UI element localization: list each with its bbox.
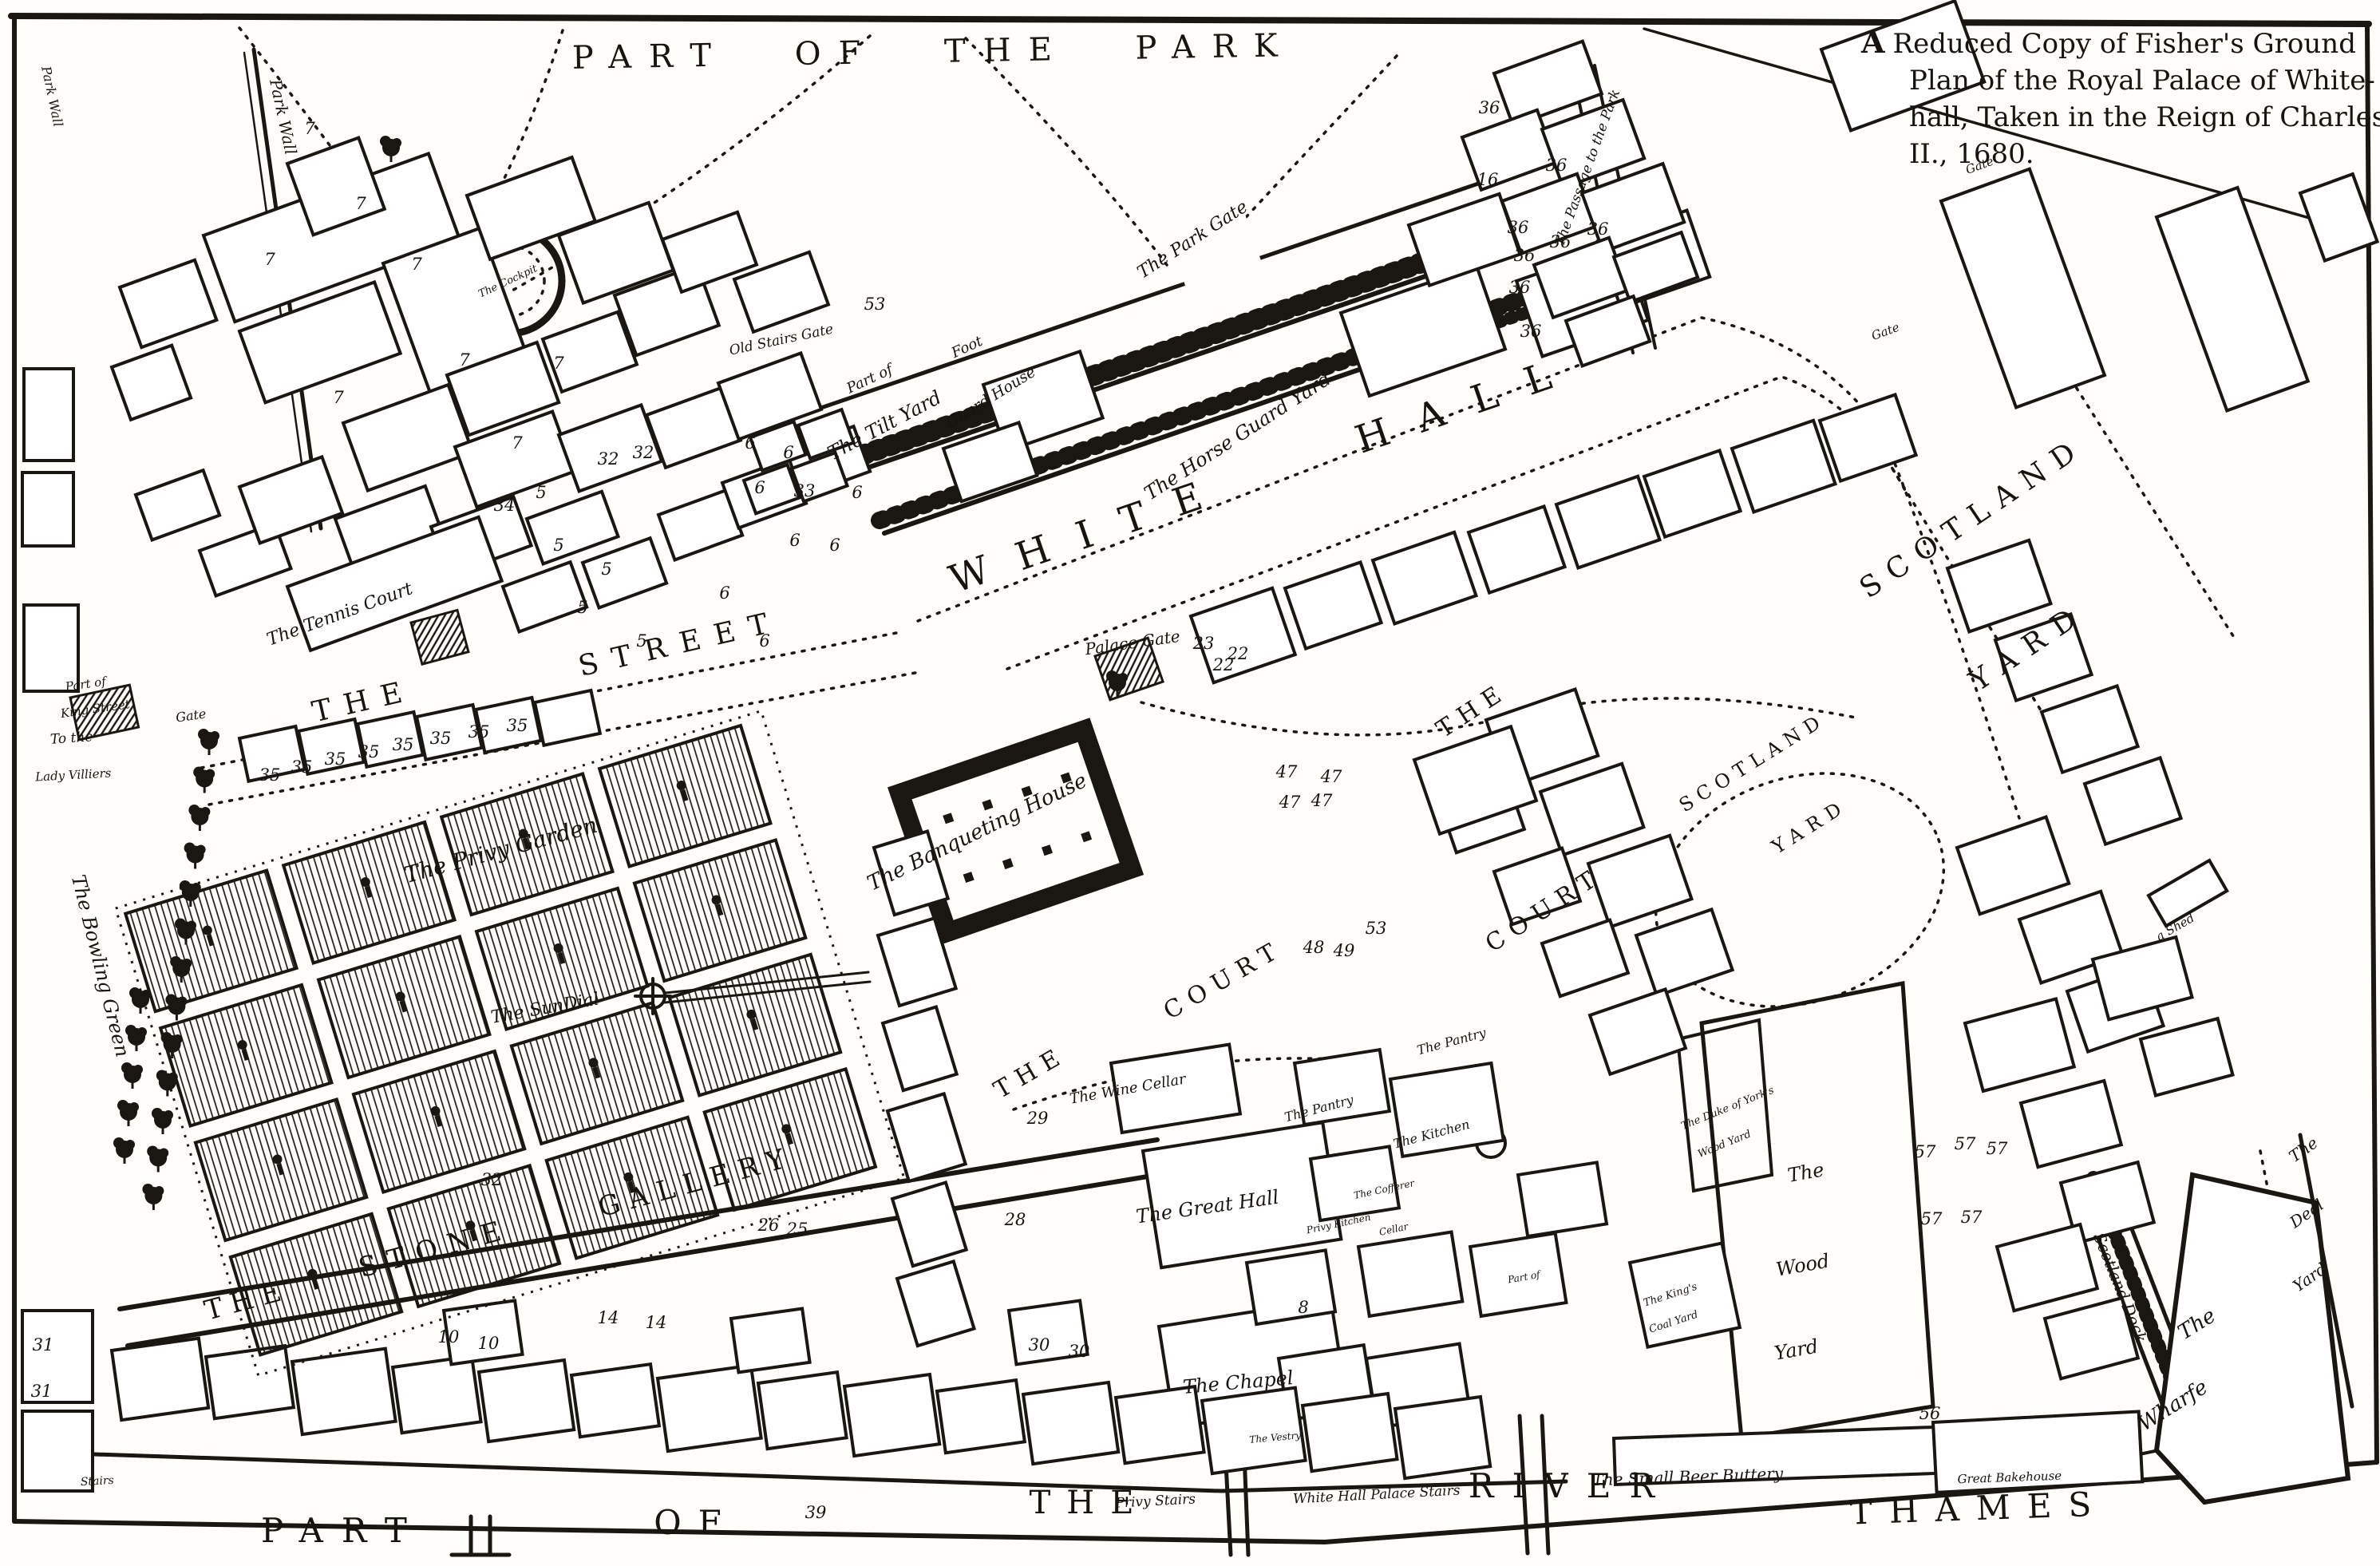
plot-number: 31 [33, 1335, 54, 1354]
plot-number: 6 [829, 536, 840, 555]
building-outline [1518, 1162, 1607, 1236]
plot-number: 35 [393, 735, 414, 754]
building-outline [1373, 532, 1476, 624]
plot-number: 53 [864, 295, 886, 314]
building-outline [844, 1374, 939, 1456]
plot-number: 6 [789, 531, 800, 550]
plot-number: 5 [577, 598, 587, 617]
label-part-of-the-park: PART OF THE PARK [572, 27, 1295, 77]
building-outline [1556, 477, 1659, 568]
plot-number: 6 [754, 478, 765, 497]
plot-number: 29 [1026, 1109, 1049, 1128]
plot-number: 25 [786, 1220, 808, 1239]
label-park-wall: Park Wall [38, 64, 66, 128]
building-outline [883, 1007, 957, 1091]
building-outline [1285, 562, 1382, 648]
building-outline [479, 1360, 574, 1441]
building-outline [1116, 1386, 1204, 1463]
plot-number: 35 [430, 729, 452, 748]
plot-number: 56 [1919, 1404, 1941, 1423]
building-outline [888, 1093, 966, 1181]
building-outline [543, 312, 637, 392]
building-outline [1644, 450, 1741, 536]
building-outline [343, 385, 472, 490]
tree-icon [152, 1108, 173, 1134]
label-gate: Gate [1869, 320, 1901, 343]
plot-number: 26 [757, 1216, 780, 1235]
plot-number: 36 [1479, 98, 1500, 117]
plot-number: 32 [598, 449, 619, 469]
label-duke-wood-yard: Wood Yard [1696, 1129, 1753, 1161]
label-old-stairs-gate: Old Stairs Gate [728, 322, 835, 359]
label-deal-yard: The [2286, 1133, 2322, 1166]
building-outline [503, 562, 587, 631]
plot-number: 49 [1333, 941, 1355, 960]
engraved-map-page: 7777777735353535353535353432323255555666… [0, 0, 2380, 1566]
plot-number: 6 [719, 583, 729, 603]
building-outline [658, 1366, 761, 1452]
tree-icon [193, 767, 215, 793]
building-outline [937, 1380, 1025, 1453]
building-outline [897, 1261, 974, 1346]
plot-number: 14 [646, 1313, 667, 1332]
plot-number: 47 [1275, 762, 1298, 781]
label-the-street: STREET [575, 605, 785, 684]
plot-number: 36 [1587, 219, 1609, 239]
building-outline [583, 538, 666, 607]
building-outline [892, 1183, 967, 1267]
label-stairs: Stairs [80, 1474, 114, 1489]
label-river-caption: PART [261, 1511, 425, 1550]
park-path [966, 38, 1167, 265]
small-pier [452, 1517, 509, 1555]
plot-number: 10 [478, 1334, 500, 1353]
plot-number: 33 [794, 481, 816, 500]
building-outline [2021, 1081, 2121, 1167]
plot-number: 7 [333, 388, 344, 407]
plot-number: 35 [259, 765, 281, 785]
plot-number: 47 [1311, 791, 1333, 810]
label-river-caption: THAMES [1849, 1484, 2109, 1532]
plot-number: 7 [355, 194, 366, 213]
label-bowling-green: The Bowling Green [67, 872, 134, 1059]
tree-icon [165, 995, 187, 1021]
plot-number: 8 [1298, 1298, 1308, 1317]
building-outline [1247, 1250, 1335, 1324]
plot-number: 35 [358, 742, 380, 761]
tree-icon [198, 729, 219, 755]
building-outline [239, 457, 342, 543]
wood-yard-outline [1702, 983, 1933, 1438]
plot-number: 48 [1303, 938, 1325, 957]
plot-number: 57 [1915, 1142, 1936, 1161]
building-outline [112, 346, 191, 420]
title-lead: A [1860, 24, 1885, 60]
plot-number: 5 [601, 560, 611, 579]
plot-number: 6 [852, 483, 862, 502]
tree-icon [117, 1100, 139, 1126]
plot-number: 47 [1320, 767, 1342, 786]
plot-number: 36 [1514, 246, 1536, 265]
building-outline [1957, 817, 2069, 915]
plot-number: 7 [459, 350, 470, 370]
building-outline [527, 492, 618, 564]
building-outline [1732, 421, 1835, 512]
plot-number: 34 [494, 496, 516, 515]
tree-icon [188, 805, 210, 831]
privy-garden-plots [116, 711, 904, 1376]
building-outline [1469, 506, 1565, 592]
plot-number: 57 [1961, 1208, 1983, 1227]
plot-number: 7 [512, 433, 523, 453]
building-outline [22, 473, 73, 546]
court-gate-block [411, 610, 468, 664]
building-outline [2085, 757, 2181, 844]
plot-number: 5 [553, 536, 563, 555]
plot-number: 57 [1921, 1209, 1943, 1228]
tree-icon [184, 843, 206, 869]
label-to-the-villiers: To the [49, 729, 93, 748]
plot-number: 36 [1508, 218, 1529, 237]
plot-number: 30 [1029, 1335, 1050, 1354]
plot-number: 22 [1227, 644, 1249, 663]
building-outline [1965, 999, 2074, 1091]
building-outline [2042, 686, 2138, 772]
building-outline [1023, 1382, 1118, 1464]
tree-icon [129, 987, 151, 1014]
building-outline [1542, 920, 1628, 996]
building-outline [1947, 540, 2050, 632]
map-title-line: hall, Taken in the Reign of Charles [1909, 101, 2380, 133]
map-title-line: AReduced Copy of Fisher's Ground [1860, 24, 2356, 60]
label-cellar: Cellar [1378, 1220, 1410, 1238]
building-outline [1941, 169, 2105, 408]
plot-number: 7 [304, 119, 315, 138]
label-wood-yard: Wood [1774, 1249, 1831, 1280]
label-park-wall: Park Wall [266, 77, 301, 156]
building-outline [1358, 1232, 1462, 1316]
plot-number: 35 [507, 716, 528, 735]
plot-number: 36 [1520, 322, 1542, 341]
plot-number: 47 [1279, 793, 1301, 812]
frame-top-line [11, 16, 2369, 24]
plot-number: 7 [264, 250, 275, 269]
label-duke-wood-yard: The Duke of York's [1680, 1085, 1777, 1133]
plot-number: 32 [481, 1170, 503, 1189]
label-to-the-villiers: Lady Villiers [34, 766, 112, 785]
tree-icon [147, 1146, 168, 1173]
plot-number: 57 [1987, 1139, 2008, 1158]
building-outline [1820, 394, 1916, 480]
building-outline [1540, 764, 1643, 856]
map-title-line: Plan of the Royal Palace of White- [1909, 65, 2375, 97]
label-river-caption: OF [654, 1503, 738, 1542]
building-outline [758, 1372, 847, 1449]
label-pantry: The Pantry [1415, 1025, 1488, 1058]
label-the-court: COURT [1159, 935, 1288, 1026]
building-outline [1590, 989, 1686, 1074]
building-outline [24, 369, 73, 461]
plot-number: 7 [411, 255, 422, 274]
building-outline [1636, 909, 1733, 995]
plot-number: 35 [291, 757, 313, 777]
building-outline [1997, 1224, 2097, 1311]
plot-number: 16 [1477, 170, 1499, 189]
building-outline [1303, 1394, 1398, 1471]
plot-number: 30 [1069, 1342, 1090, 1361]
building-outline [571, 1364, 659, 1437]
building-outline [535, 690, 600, 745]
plot-number: 35 [468, 722, 490, 741]
title-line1: Reduced Copy of Fisher's Ground [1892, 28, 2355, 60]
building-outline [731, 1308, 810, 1372]
building-outline [393, 1356, 481, 1433]
plot-number: 36 [1509, 278, 1531, 297]
building-outline [112, 1339, 208, 1420]
plot-number: 14 [598, 1308, 619, 1327]
label-wood-yard: The [1786, 1158, 1826, 1187]
label-scotland-street: SCOTLAND [1675, 708, 1830, 817]
building-outline [2300, 174, 2378, 261]
tree-icon [380, 136, 401, 162]
plot-number: 28 [1004, 1210, 1026, 1229]
plot-number: 10 [438, 1327, 460, 1347]
plot-number: 32 [633, 443, 654, 462]
tree-icon [142, 1184, 164, 1210]
building-outline [206, 1346, 294, 1418]
tree-icon [121, 1062, 143, 1089]
building-outline [136, 470, 219, 540]
whitehall-plan-svg: 7777777735353535353535353432323255555666… [0, 0, 2380, 1566]
plot-number: 6 [783, 443, 793, 462]
plot-number: 36 [1546, 156, 1568, 175]
plot-number: 39 [805, 1503, 827, 1522]
plot-number: 5 [536, 483, 546, 502]
label-the-court: THE [989, 1041, 1072, 1105]
plot-number: 23 [1192, 634, 1215, 653]
plot-number: 57 [1955, 1134, 1976, 1153]
building-outline [2157, 188, 2308, 410]
plot-number: 7 [553, 354, 564, 373]
plot-number: 31 [31, 1382, 53, 1401]
building-outline [292, 1349, 396, 1435]
plot-number: 53 [1366, 919, 1387, 938]
plot-number: 35 [325, 749, 346, 769]
label-wood-yard: Yard [1773, 1335, 1820, 1365]
plot-number: 6 [745, 433, 755, 453]
label-gate: Gate [175, 706, 207, 725]
tree-icon [156, 1070, 178, 1097]
tree-icon [113, 1137, 135, 1164]
building-outline [120, 260, 216, 347]
label-privy-stairs: Privy Stairs [1114, 1491, 1196, 1511]
label-scotland-street: YARD [1767, 794, 1852, 859]
